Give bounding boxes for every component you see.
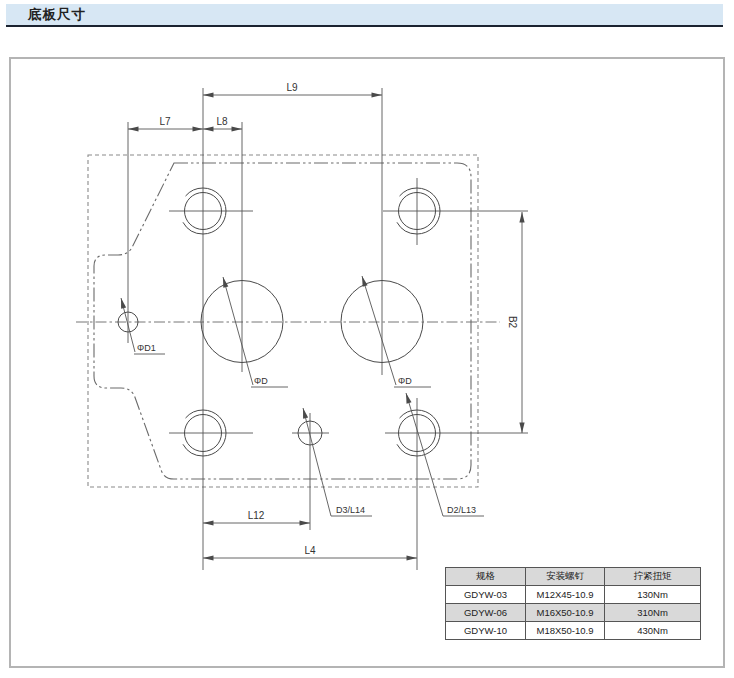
spec-cell-model: GDYW-03 (446, 586, 526, 604)
spec-cell-model: GDYW-10 (446, 622, 526, 640)
dim-label-phi-d-right: ΦD (398, 376, 412, 386)
centerlines (76, 178, 528, 433)
port-holes (118, 281, 423, 446)
spec-header-torque: 拧紧扭矩 (605, 568, 701, 586)
dim-label-phi-d1: ΦD1 (137, 343, 156, 353)
dim-label-l4: L4 (304, 545, 316, 556)
spec-cell-model: GDYW-06 (446, 604, 526, 622)
dimension-lines (128, 95, 522, 558)
spec-header-model: 规格 (446, 568, 526, 586)
spec-table-row: GDYW-10 M18X50-10.9 430Nm (446, 622, 701, 640)
dim-label-phi-d-left: ΦD (254, 376, 268, 386)
leader-lines (121, 276, 484, 516)
spec-cell-torque: 310Nm (605, 604, 701, 622)
dim-label-l12: L12 (248, 510, 265, 521)
spec-cell-torque: 130Nm (605, 586, 701, 604)
spec-cell-screw: M12X45-10.9 (526, 586, 605, 604)
spec-cell-torque: 430Nm (605, 622, 701, 640)
spec-header-screw: 安装螺钉 (526, 568, 605, 586)
spec-table: 规格 安装螺钉 拧紧扭矩 GDYW-03 M12X45-10.9 130Nm G… (445, 567, 701, 640)
spec-cell-screw: M16X50-10.9 (526, 604, 605, 622)
spec-cell-screw: M18X50-10.9 (526, 622, 605, 640)
dim-label-l7: L7 (159, 116, 171, 127)
dimension-labels: L9 L7 L8 B2 L12 L4 ΦD1 ΦD ΦD D3/L14 D2/L… (137, 82, 518, 556)
dim-label-d3-l14: D3/L14 (336, 505, 365, 515)
spec-table-header-row: 规格 安装螺钉 拧紧扭矩 (446, 568, 701, 586)
extension-lines (128, 88, 417, 570)
dim-label-b2: B2 (507, 316, 518, 329)
spec-table-row: GDYW-03 M12X45-10.9 130Nm (446, 586, 701, 604)
spec-table-row: GDYW-06 M16X50-10.9 310Nm (446, 604, 701, 622)
dim-label-l8: L8 (216, 116, 228, 127)
dim-label-d2-l13: D2/L13 (447, 505, 476, 515)
dim-label-l9: L9 (286, 82, 298, 93)
